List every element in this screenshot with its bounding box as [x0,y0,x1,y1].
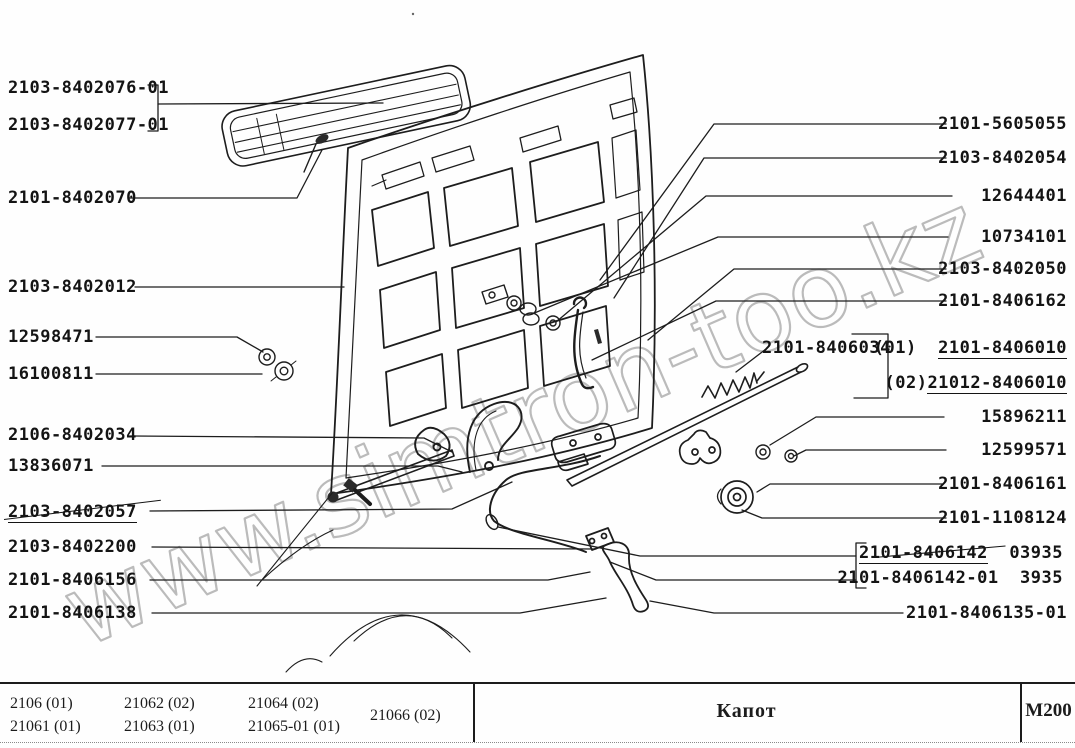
striker-plate [482,285,508,304]
part-label: 2103-8402076-01 [8,78,169,98]
variant-prefix: (02) [884,373,927,393]
variant-prefix: (01) [874,338,917,358]
part-label: 2103-8402054 [938,148,1067,168]
page-code: М200 [1022,700,1075,722]
part-label: 2101-8406161 [938,474,1067,494]
part-number: 21012-8406010 [927,373,1067,394]
part-label: 2103-8402200 [8,537,137,557]
part-label: 12599571 [981,440,1067,460]
section-title: Капот [475,700,1018,723]
model-cell: 21065-01 (01) [248,715,340,738]
part-label: 16100811 [8,364,94,384]
part-label: 2103-8402012 [8,277,137,297]
part-label: 2101-8406135-01 [906,603,1067,623]
release-handle [586,528,648,612]
cable-variant-old: 2101-8406142 03935 [859,543,1063,563]
part-label: 12598471 [8,327,94,347]
part-number: 2101-8406142-01 [838,568,999,588]
part-label: 12644401 [981,186,1067,206]
model-cell: 21064 (02) [248,692,340,715]
part-label: 10734101 [981,227,1067,247]
part-label: 2101-8406162 [938,291,1067,311]
lock-variant-01: (01) 2101-8406010 [874,338,1067,358]
part-label: 2101-8406156 [8,570,137,590]
lock-washer [756,445,770,459]
model-column: 21064 (02) 21065-01 (01) [248,692,340,738]
speck [412,13,414,15]
catalog-page: www.simtron-too.kz [0,0,1075,748]
variant-code: 3935 [1020,568,1063,588]
lock-variant-02: (02)21012-8406010 [884,373,1067,393]
rubber-grommet [718,481,754,513]
part-number: 2101-8406010 [938,338,1067,359]
part-label: 2101-5605055 [938,114,1067,134]
variant-code: 03935 [1009,543,1063,563]
part-label: 2106-8402034 [8,425,137,445]
model-column: 2106 (01) 21061 (01) [10,692,81,738]
lock-body [680,430,721,464]
part-label: 13836071 [8,456,94,476]
part-label: 2101-8402070 [8,188,137,208]
air-intake-grille [219,63,473,169]
lock-base-label: 2101-8406034 [762,338,891,358]
washer-small-a [507,296,521,310]
model-cell: 21061 (01) [10,715,81,738]
cable-variant-new: 2101-8406142-01 3935 [838,568,1063,588]
part-label: 15896211 [981,407,1067,427]
model-cell: 21063 (01) [124,715,195,738]
model-column: 21062 (02) 21063 (01) [124,692,195,738]
part-label: 2101-1108124 [938,508,1067,528]
model-cell: 2106 (01) [10,692,81,715]
footer-table: 2106 (01) 21061 (01) 21062 (02) 21063 (0… [0,682,1075,743]
grommet-stack [520,303,539,325]
nut-and-washer [259,349,296,381]
part-label: 2101-8406138 [8,603,137,623]
model-cell: 21062 (02) [124,692,195,715]
model-cell: 21066 (02) [370,704,441,727]
part-label: 2103-8402050 [938,259,1067,279]
model-column: 21066 (02) [370,704,441,727]
part-label: 2103-8402077-01 [8,115,169,135]
